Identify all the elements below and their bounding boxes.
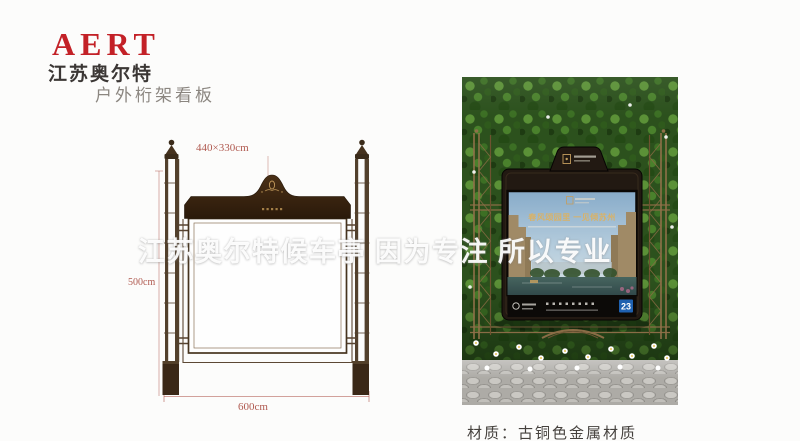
sign-arch-top xyxy=(550,147,608,171)
sign-bottom-strip: 23 xyxy=(508,295,637,317)
catalog-page: AERT 江苏奥尔特 户外桁架看板 440×330cm 500cm 600cm xyxy=(0,0,800,441)
dimension-left-label: 500cm xyxy=(128,277,155,288)
material-note: 材质：古铜色金属材质 xyxy=(467,422,637,441)
dimension-bottom-label: 600cm xyxy=(238,401,268,413)
header-panel xyxy=(185,175,351,219)
page-title: 户外桁架看板 xyxy=(95,81,215,106)
strip-corner-number: 23 xyxy=(621,302,631,312)
ad-headline: 春风颂园里 一见倾苏州 xyxy=(528,212,616,222)
technical-drawing: 440×330cm 500cm 600cm xyxy=(95,125,435,420)
watermark: 江苏奥尔特候车亭 因为专注 所以专业 xyxy=(138,230,612,269)
ad-lake xyxy=(508,277,637,295)
ad-boat xyxy=(530,280,538,283)
brand-logo: AERT xyxy=(52,26,160,63)
truss-right xyxy=(650,129,667,339)
ad-subline xyxy=(528,226,616,228)
dimension-top-label: 440×330cm xyxy=(196,142,249,154)
daisy-band xyxy=(473,340,670,371)
